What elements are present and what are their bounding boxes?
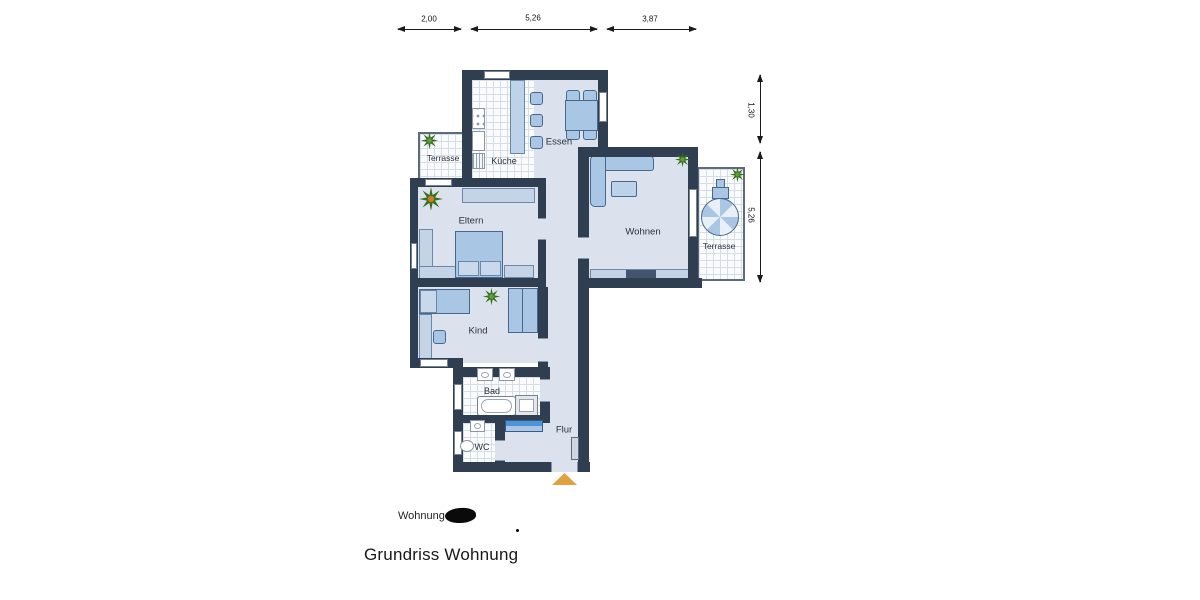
window-child-bottom — [420, 359, 448, 367]
bath-sink — [477, 368, 493, 381]
shower — [515, 395, 538, 416]
child-wardrobe-divider — [522, 289, 523, 332]
wall-segment — [410, 287, 418, 368]
parents-bench — [504, 265, 534, 278]
door-opening-parents — [538, 218, 546, 240]
wc-sink — [470, 420, 485, 432]
parasol-pole — [716, 179, 725, 188]
wall-segment — [462, 70, 472, 187]
bar-stool — [530, 92, 543, 105]
door-opening-wc — [495, 440, 505, 461]
room-label-kitchen: Küche — [491, 156, 517, 166]
door-opening-living — [578, 237, 589, 259]
dimension-line — [398, 29, 461, 30]
window-kitchen-top — [484, 71, 510, 79]
window-parents-left — [411, 243, 417, 269]
room-label-child: Kind — [468, 326, 487, 337]
door-opening-bath — [540, 379, 550, 402]
hall-radiator — [571, 437, 579, 460]
door-opening-entrance — [551, 462, 578, 472]
bath-sink — [499, 368, 515, 381]
dimension-label: 1,30 — [747, 102, 756, 118]
plant-icon — [420, 131, 439, 150]
entrance-arrow-icon — [552, 473, 577, 485]
dimension-line — [760, 75, 761, 143]
child-desk — [419, 314, 432, 360]
bar-stool — [530, 114, 543, 127]
dimension-line — [607, 29, 696, 30]
window-dining-right — [599, 92, 607, 122]
dimension-label: 5,26 — [747, 207, 756, 223]
kitchen-radiator — [472, 153, 485, 169]
wall-segment — [410, 278, 546, 287]
room-label-bath: Bad — [484, 386, 500, 396]
sofa-vertical — [590, 155, 606, 207]
dining-table — [565, 100, 598, 131]
plant-icon — [482, 287, 501, 306]
dimension-line — [471, 29, 597, 30]
wall-segment — [410, 178, 418, 287]
parents-wardrobe — [462, 188, 535, 203]
hall-wardrobe — [505, 420, 543, 432]
room-label-living: Wohnen — [625, 227, 660, 238]
window-bath-left — [454, 384, 462, 410]
child-bed-pillow — [420, 290, 437, 313]
plant-icon — [729, 166, 746, 183]
child-chair — [433, 330, 446, 344]
dimension-label: 5,26 — [525, 14, 541, 23]
plant-icon — [674, 151, 691, 168]
wall-segment — [578, 278, 702, 288]
dimension-label: 3,87 — [642, 15, 658, 24]
bathtub — [477, 396, 516, 416]
terrace-door-parents — [425, 179, 452, 186]
parasol-icon — [701, 198, 739, 236]
room-label-dining: Essen — [546, 137, 572, 148]
dimension-label: 2,00 — [421, 15, 437, 24]
room-label-parents: Eltern — [459, 216, 484, 227]
door-opening-child — [538, 338, 548, 362]
page-title: Grundriss Wohnung — [364, 545, 518, 565]
coffee-table — [611, 181, 637, 197]
room-label-terrace-left: Terrasse — [427, 153, 460, 163]
plant-icon — [418, 186, 444, 212]
toilet — [460, 440, 474, 452]
stove-hob — [472, 108, 485, 129]
ink-dot — [516, 529, 519, 532]
dimension-line — [760, 152, 761, 282]
wall-segment — [578, 147, 589, 462]
bar-stool — [530, 136, 543, 149]
room-label-terrace-right: Terrasse — [703, 241, 736, 251]
floor-plan-page: Terrasse Küche Essen Eltern Wohnen Terra… — [0, 0, 1200, 600]
terrace-door-living — [689, 189, 697, 237]
room-label-hall: Flur — [556, 425, 572, 436]
room-label-wc: WC — [475, 442, 490, 452]
tv-unit — [626, 270, 656, 278]
bed-pillow — [480, 261, 501, 276]
kitchen-unit — [472, 131, 485, 151]
child-wardrobe — [508, 288, 538, 333]
kitchen-counter — [510, 80, 525, 154]
bed-pillow — [458, 261, 479, 276]
